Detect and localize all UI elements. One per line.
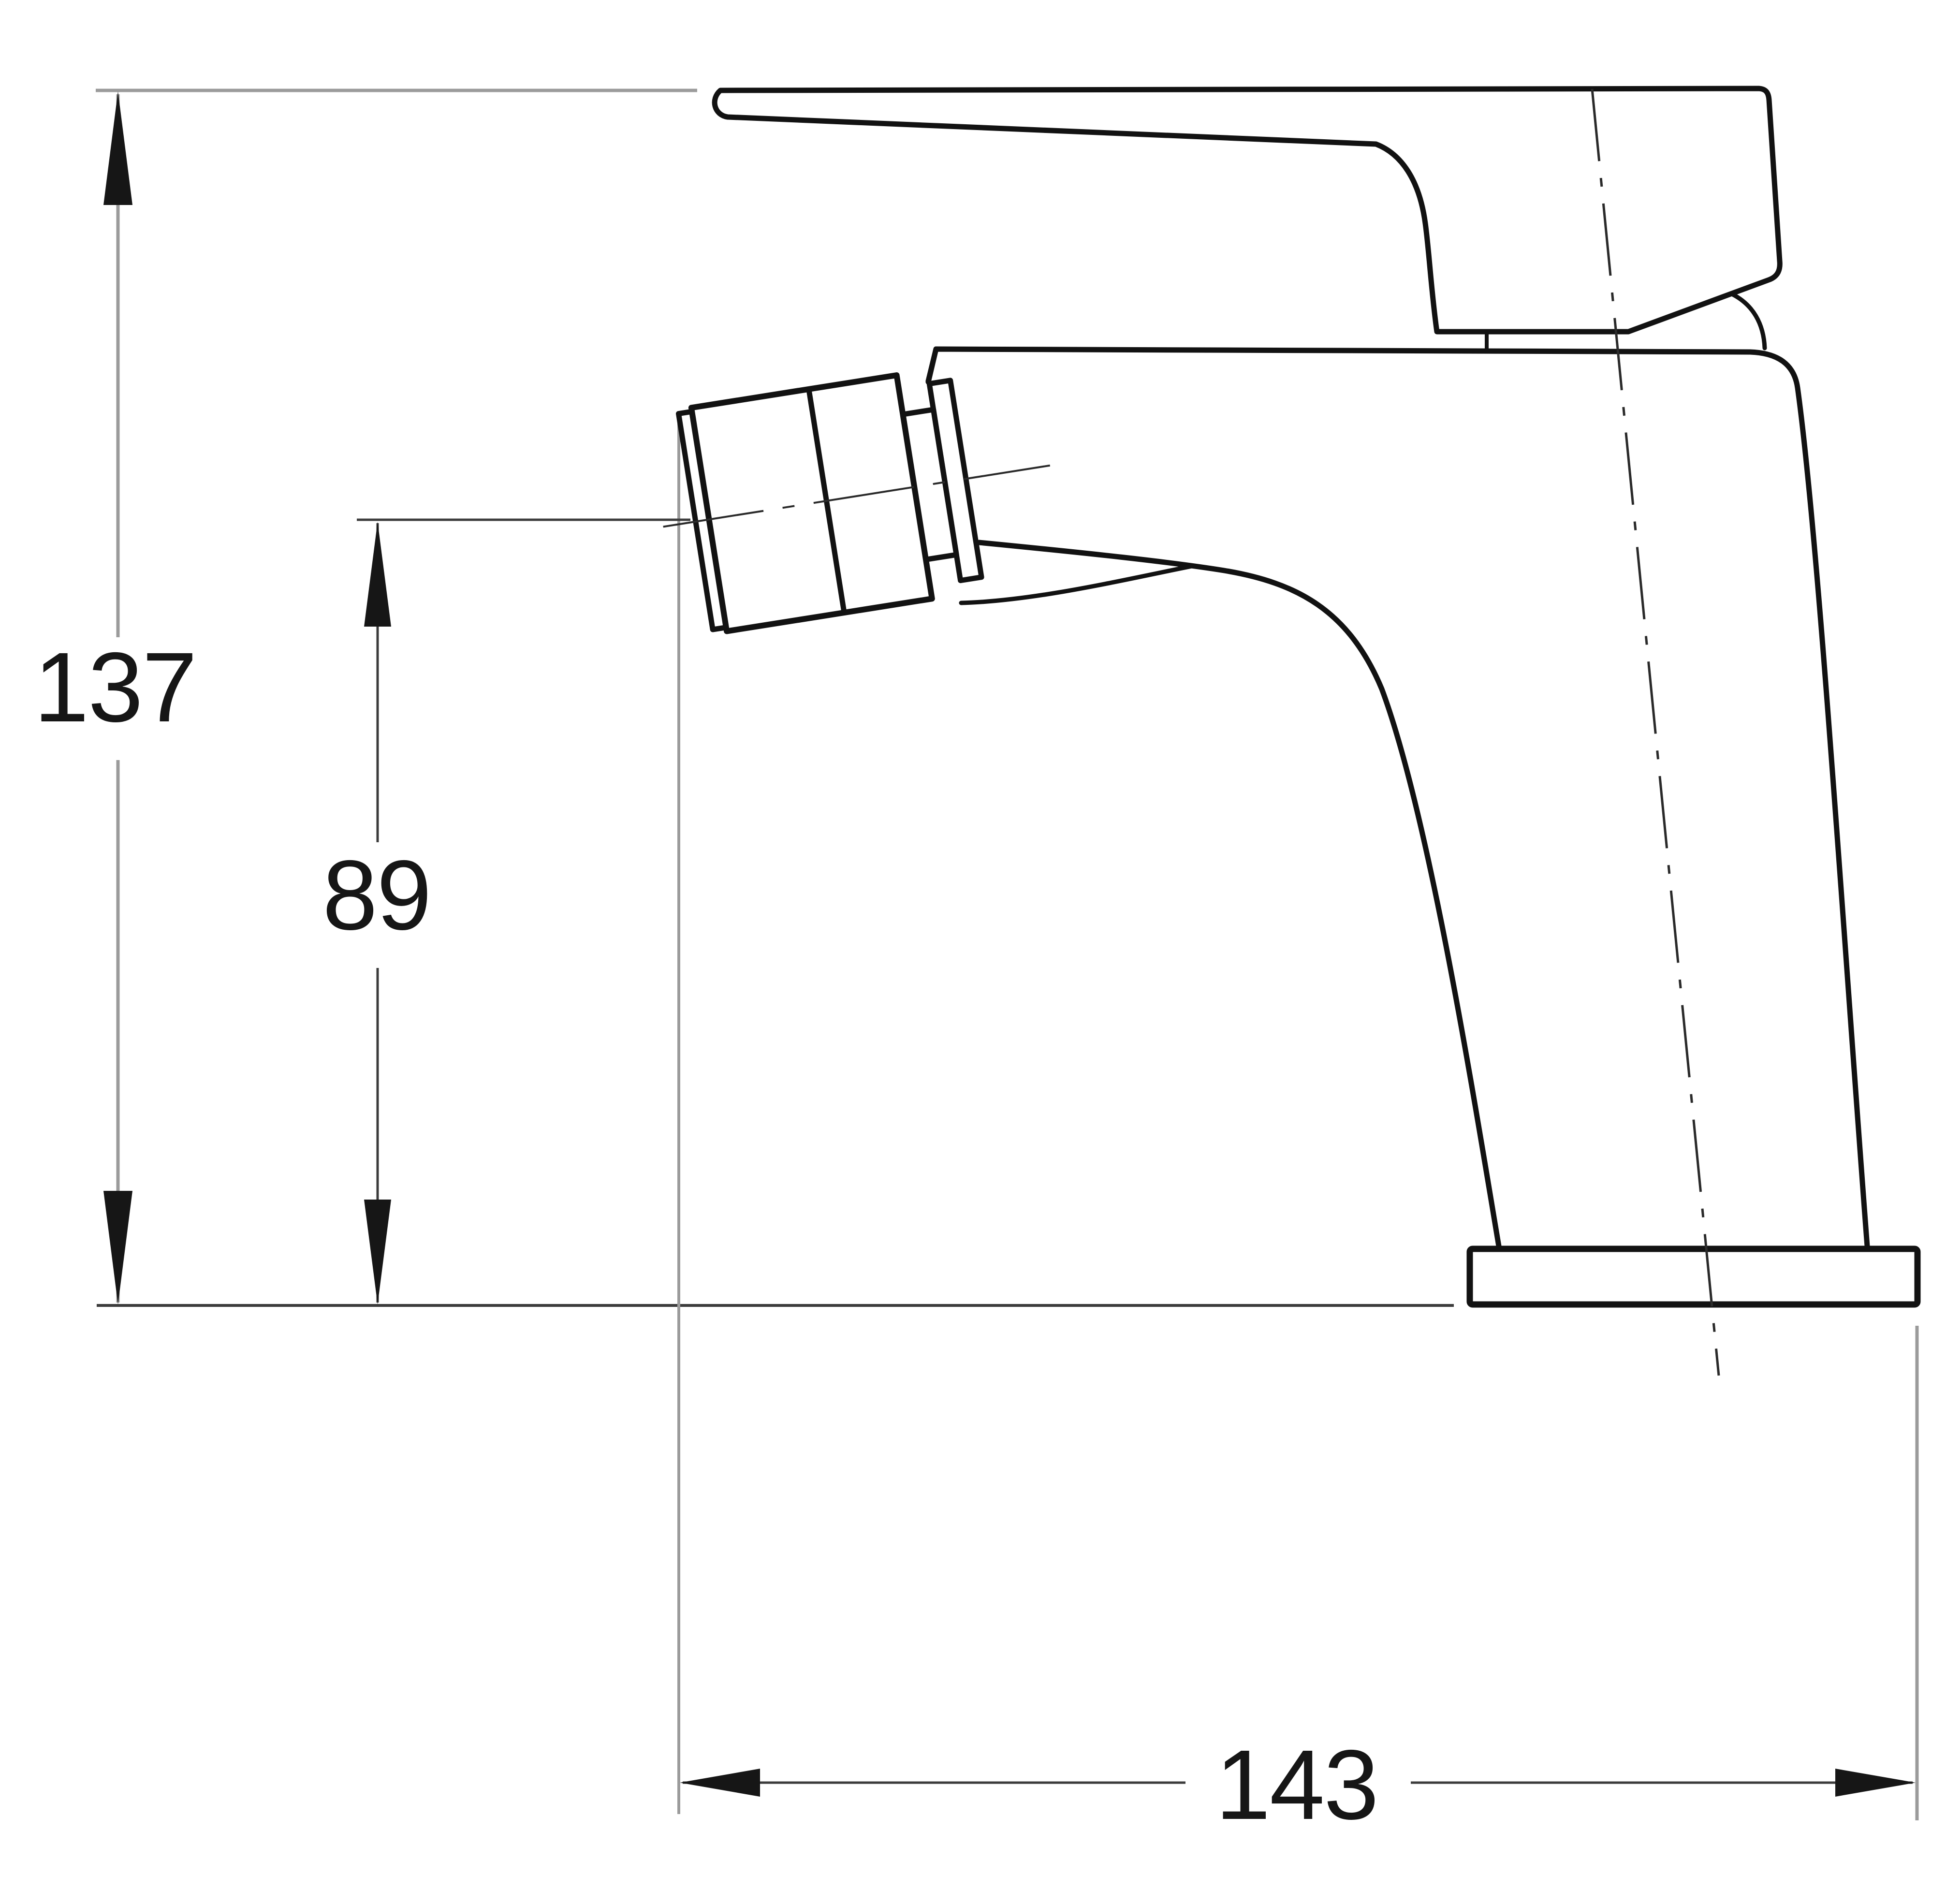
arrow-left-icon: [680, 1769, 760, 1797]
cartridge-dome-edge: [1732, 294, 1765, 348]
lever-blade: [715, 88, 1780, 332]
arrow-up-icon: [364, 522, 391, 627]
arrow-down-icon: [103, 1191, 132, 1304]
faucet-body: [928, 349, 1867, 1246]
handle-lever: [715, 88, 1780, 349]
dimension-label-137: 137: [34, 632, 196, 743]
dimension-label-143: 143: [1215, 1729, 1378, 1840]
spout-taper-line: [961, 566, 1194, 603]
arrow-up-icon: [103, 91, 132, 205]
base-plate: [1470, 1249, 1917, 1304]
dimension-label-89: 89: [322, 840, 431, 951]
technical-drawing: 137 89 143: [0, 0, 1946, 1904]
arrow-down-icon: [364, 1200, 391, 1304]
drawing-canvas: 137 89 143: [0, 0, 1946, 1904]
arrow-right-icon: [1835, 1769, 1916, 1797]
body-silhouette: [928, 349, 1867, 1246]
aerator-silhouette: [678, 373, 933, 635]
